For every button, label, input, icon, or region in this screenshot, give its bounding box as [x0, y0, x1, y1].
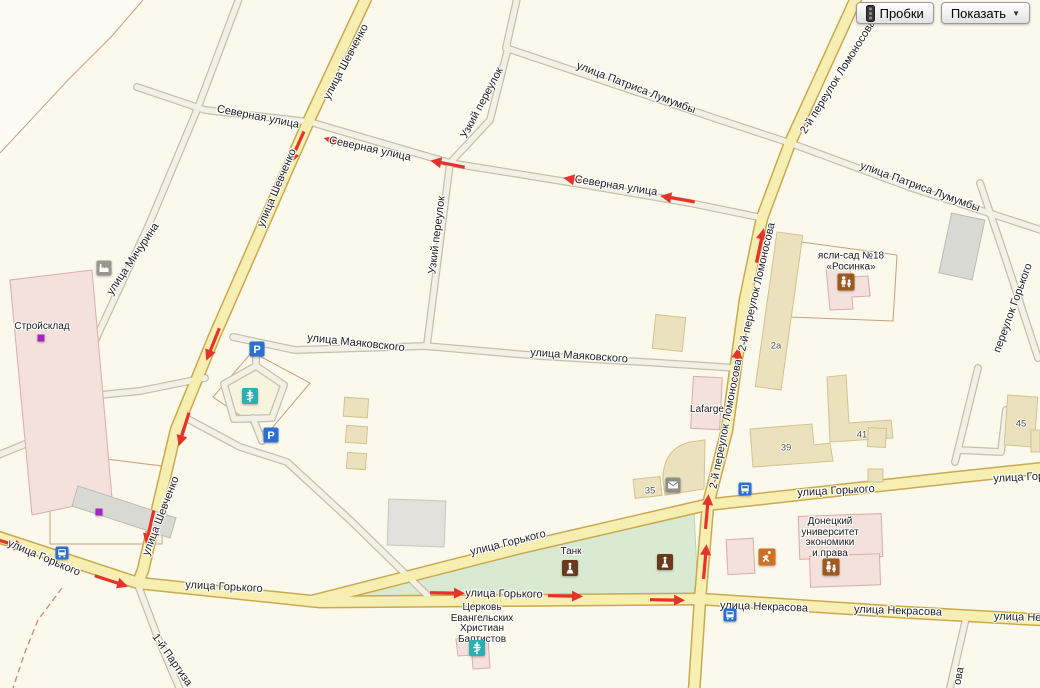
svg-text:P: P	[267, 430, 274, 442]
post-office-icon[interactable]	[666, 478, 681, 493]
show-button-label: Показать	[951, 6, 1006, 21]
dropdown-caret-icon: ▼	[1012, 9, 1020, 18]
map-canvas	[0, 0, 1040, 688]
monument-icon[interactable]	[562, 560, 578, 576]
svg-text:P: P	[253, 344, 260, 356]
bus-stop-icon[interactable]	[56, 547, 69, 560]
bus-stop-icon[interactable]	[724, 609, 737, 622]
traffic-light-icon	[866, 5, 875, 22]
map-viewport[interactable]: улица Патриса Лумумбыулица Патриса Лумум…	[0, 0, 1040, 688]
church-icon[interactable]	[469, 640, 485, 656]
traffic-button-label: Пробки	[880, 6, 924, 21]
parking-icon[interactable]: P	[250, 342, 265, 357]
traffic-button[interactable]: Пробки	[856, 2, 934, 24]
sport-icon[interactable]	[759, 549, 776, 566]
monument-icon[interactable]	[657, 554, 673, 570]
bus-stop-icon[interactable]	[739, 483, 752, 496]
parking-icon[interactable]: P	[264, 428, 279, 443]
kindergarten-icon[interactable]	[838, 274, 855, 291]
show-button[interactable]: Показать ▼	[941, 2, 1030, 24]
map-controls: Пробки Показать ▼	[856, 2, 1030, 24]
university-icon[interactable]	[823, 559, 840, 576]
church-icon[interactable]	[242, 388, 258, 404]
industrial-icon[interactable]	[97, 261, 112, 276]
